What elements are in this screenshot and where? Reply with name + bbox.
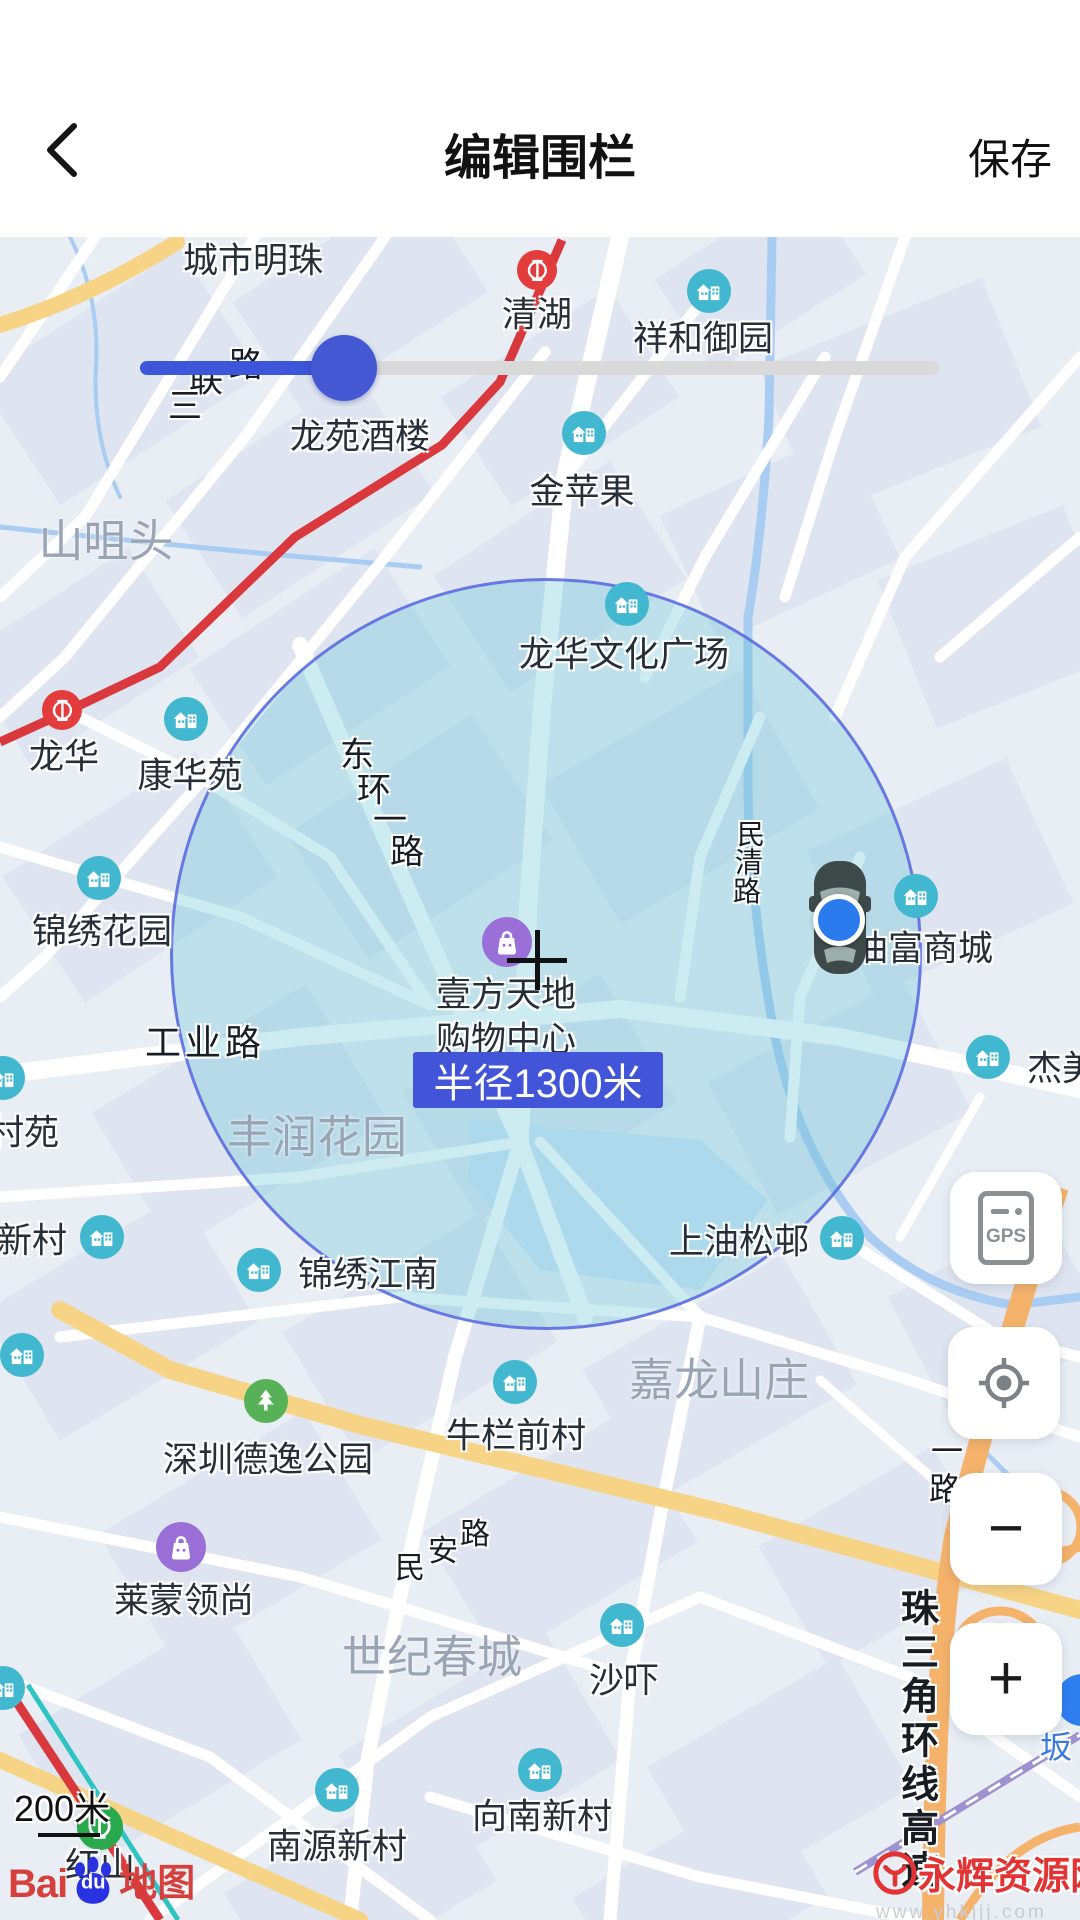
gps-icon: GPS	[978, 1191, 1034, 1265]
vehicle-location-dot	[813, 894, 865, 946]
poi-label: 深圳德逸公园	[163, 1432, 373, 1483]
poi-label: 新村	[0, 1213, 67, 1264]
map-scale-bar	[38, 1833, 100, 1837]
poi-label: 上油松邨	[669, 1214, 809, 1265]
poi-label: 杰美	[1027, 1041, 1080, 1092]
locate-button[interactable]	[948, 1327, 1060, 1439]
building-poi-icon	[0, 1333, 44, 1377]
building-poi-icon	[687, 269, 731, 313]
baidu-map-suffix: 地图	[119, 1852, 195, 1907]
building-poi-icon	[966, 1035, 1010, 1079]
road-label-char: 路	[390, 825, 424, 874]
poi-label: 向南新村	[472, 1789, 612, 1840]
building-poi-icon	[77, 856, 121, 900]
area-label: 嘉龙山庄	[629, 1344, 809, 1409]
plus-icon: +	[988, 1648, 1024, 1710]
app-screen: 编辑围栏 保存	[0, 0, 1080, 1920]
road-label-char: 路	[733, 870, 761, 910]
header-bar: 编辑围栏 保存	[0, 0, 1080, 237]
poi-label: 村苑	[0, 1105, 59, 1156]
poi-label: 莱蒙领尚	[114, 1573, 254, 1624]
zoom-out-button[interactable]: −	[950, 1473, 1062, 1585]
poi-label: 祥和御园	[633, 311, 773, 362]
map-scale-label: 200米	[14, 1780, 110, 1832]
page-title: 编辑围栏	[0, 118, 1080, 188]
building-poi-icon	[894, 874, 938, 918]
park-poi-icon	[244, 1379, 288, 1423]
poi-label: 清湖	[502, 287, 572, 338]
baidu-logo-text: Bai	[8, 1862, 67, 1907]
baidu-paw-icon: du	[69, 1851, 117, 1907]
poi-label: 康华苑	[137, 748, 242, 799]
poi-label: 锦绣花园	[32, 904, 172, 955]
baidu-du-text: du	[81, 1872, 105, 1895]
building-poi-icon	[562, 411, 606, 455]
radius-slider-handle[interactable]	[311, 335, 377, 401]
radius-slider[interactable]	[140, 361, 940, 375]
locate-target-icon	[972, 1351, 1036, 1415]
building-poi-icon	[164, 697, 208, 741]
zoom-in-button[interactable]: +	[950, 1623, 1062, 1735]
building-poi-icon	[605, 582, 649, 626]
building-poi-icon	[315, 1768, 359, 1812]
save-button[interactable]: 保存	[968, 126, 1052, 187]
mall-poi-icon	[156, 1522, 206, 1572]
gps-button[interactable]: GPS	[950, 1172, 1062, 1284]
building-poi-icon	[820, 1216, 864, 1260]
road-label-char: 业	[185, 1014, 221, 1066]
area-label: 世纪春城	[342, 1621, 522, 1686]
gps-icon-label: GPS	[986, 1226, 1026, 1248]
site-watermark: 永辉资源网 www.yhkjjj.com	[872, 1845, 1080, 1920]
poi-label: 南源新村	[267, 1819, 407, 1870]
poi-label: 龙苑酒楼	[290, 409, 430, 460]
building-poi-icon	[237, 1248, 281, 1292]
building-poi-icon	[600, 1603, 644, 1647]
poi-label: 壹方天地	[436, 967, 576, 1018]
poi-label: 龙华	[29, 729, 99, 780]
area-label: 丰润花园	[227, 1101, 407, 1166]
area-label: 山咀头	[38, 505, 173, 570]
poi-label: 金苹果	[529, 464, 634, 515]
poi-label: 油富商城	[853, 921, 993, 972]
watermark-title: 永辉资源网	[918, 1845, 1080, 1900]
poi-label: 城市明珠	[183, 237, 323, 284]
metro-station-icon	[517, 250, 557, 290]
building-poi-icon	[493, 1360, 537, 1404]
minus-icon: −	[988, 1498, 1024, 1560]
watermark-logo-icon	[872, 1850, 918, 1896]
poi-label: 龙华文化广场	[519, 627, 729, 678]
road-label-char: 联	[189, 353, 223, 402]
watermark-url: www.yhkjjj.com	[876, 1902, 1080, 1920]
building-poi-icon	[518, 1748, 562, 1792]
baidu-maps-logo: Bai du 地图	[8, 1851, 195, 1907]
metro-station-icon	[42, 690, 82, 730]
road-label-char: 工	[145, 1014, 181, 1066]
road-label-char: 安	[428, 1526, 458, 1570]
poi-label: 牛栏前村	[446, 1408, 586, 1459]
radius-badge: 半径1300米	[413, 1052, 663, 1108]
building-poi-icon	[80, 1215, 124, 1259]
poi-label: 沙吓	[589, 1653, 659, 1704]
map-canvas[interactable]: 城市明珠清湖祥和御园龙苑酒楼金苹果龙华文化广场龙华康华苑锦绣花园壹方天地购物中心…	[0, 237, 1080, 1920]
road-label-char: 路	[460, 1509, 490, 1553]
poi-label: 锦绣江南	[298, 1247, 438, 1298]
road-label-char: 民	[395, 1543, 425, 1587]
road-label-char: 路	[225, 1014, 261, 1066]
